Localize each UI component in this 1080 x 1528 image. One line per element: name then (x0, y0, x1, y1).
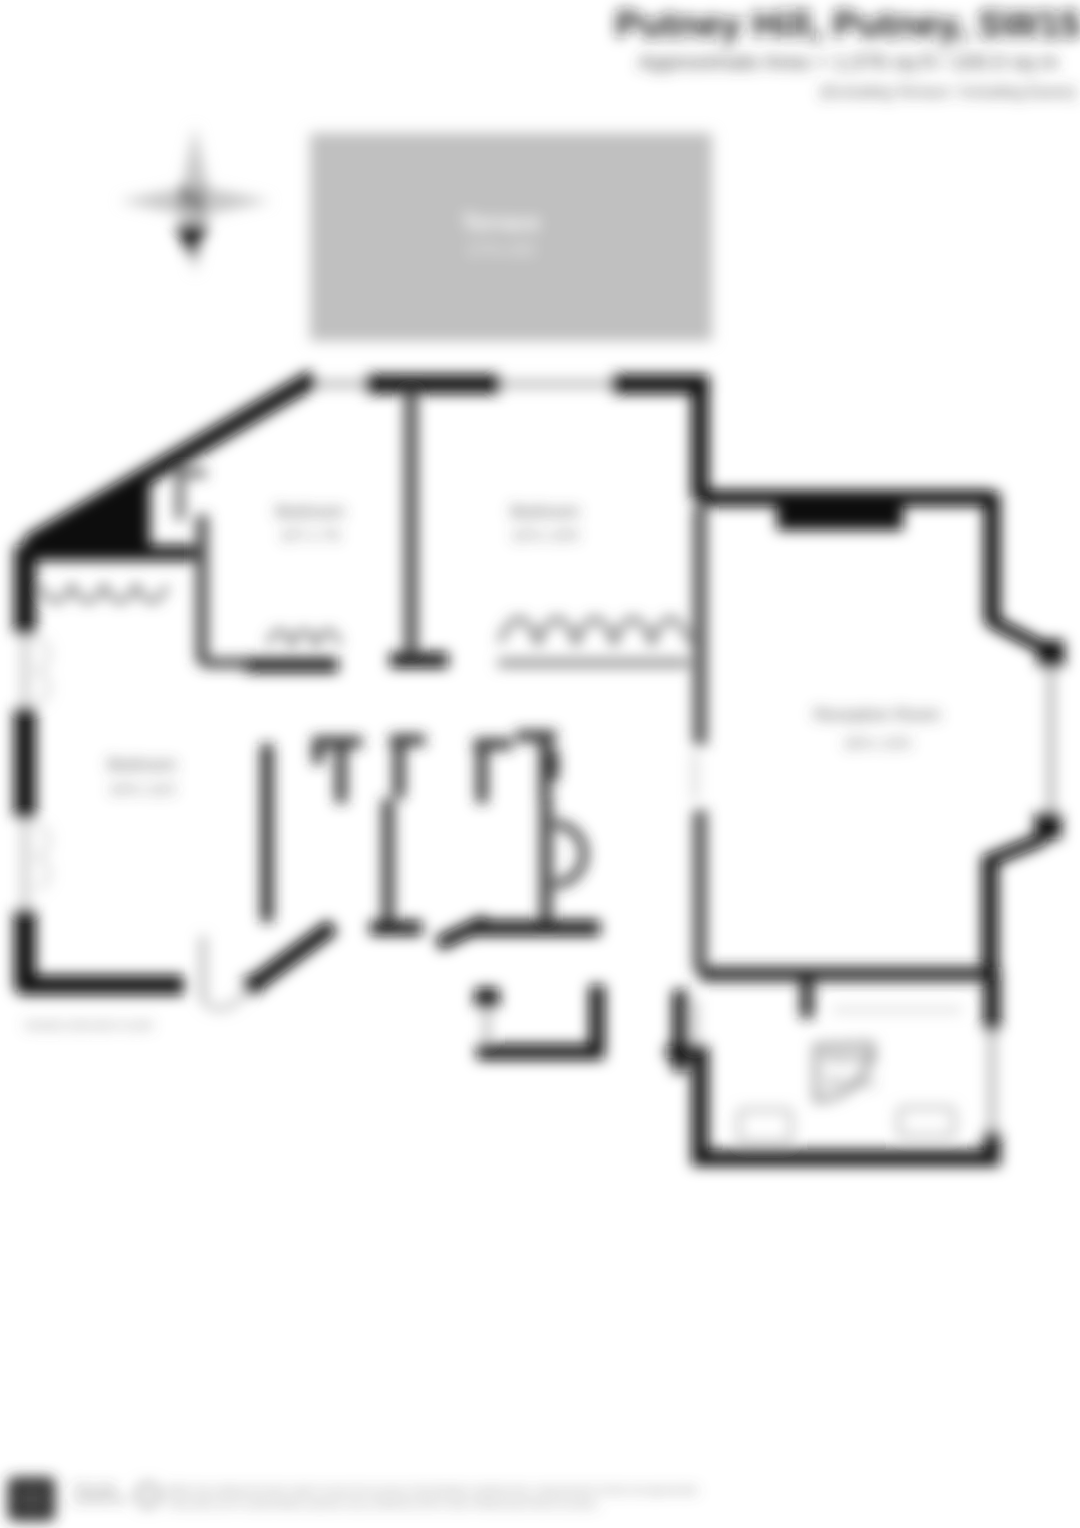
svg-text:(Excluding Terrace / Including: (Excluding Terrace / Including Eaves) (820, 84, 1076, 101)
svg-text:12'0 x 10'0: 12'0 x 10'0 (512, 527, 579, 543)
svg-text:10'7 x 7'6: 10'7 x 7'6 (280, 527, 339, 543)
svg-text:produced by: produced by (74, 1494, 127, 1505)
svg-text:These plans are for representa: These plans are for representation purpo… (166, 1499, 600, 1509)
svg-text:Bedroom: Bedroom (511, 502, 580, 521)
svg-text:14'0 x 11'0: 14'0 x 11'0 (109, 781, 175, 797)
svg-text:Approximate Area = 1,076 sq ft: Approximate Area = 1,076 sq ft / 100.0 s… (638, 50, 1058, 74)
svg-text:RAISED GROUND FLOOR: RAISED GROUND FLOOR (25, 1020, 153, 1032)
svg-text:Bedroom: Bedroom (276, 502, 345, 521)
svg-text:Kitchen: Kitchen (823, 1049, 876, 1066)
svg-text:Terrace: Terrace (462, 210, 540, 235)
svg-text:9'9 x 8'2: 9'9 x 8'2 (825, 1075, 874, 1090)
svg-text:Putney Hill, Putney, SW15: Putney Hill, Putney, SW15 (615, 4, 1080, 46)
svg-text:Floor plan: Floor plan (74, 1483, 116, 1494)
svg-text:Reception Room: Reception Room (814, 705, 941, 724)
svg-text:Whilst every attempt has been: Whilst every attempt has been made to en… (166, 1485, 699, 1495)
svg-text:18'0 x 15'0: 18'0 x 15'0 (844, 735, 911, 751)
svg-text:Bedroom: Bedroom (108, 755, 177, 774)
svg-text:N: N (179, 179, 206, 220)
svg-text:17'4 x 8'2: 17'4 x 8'2 (467, 242, 535, 259)
